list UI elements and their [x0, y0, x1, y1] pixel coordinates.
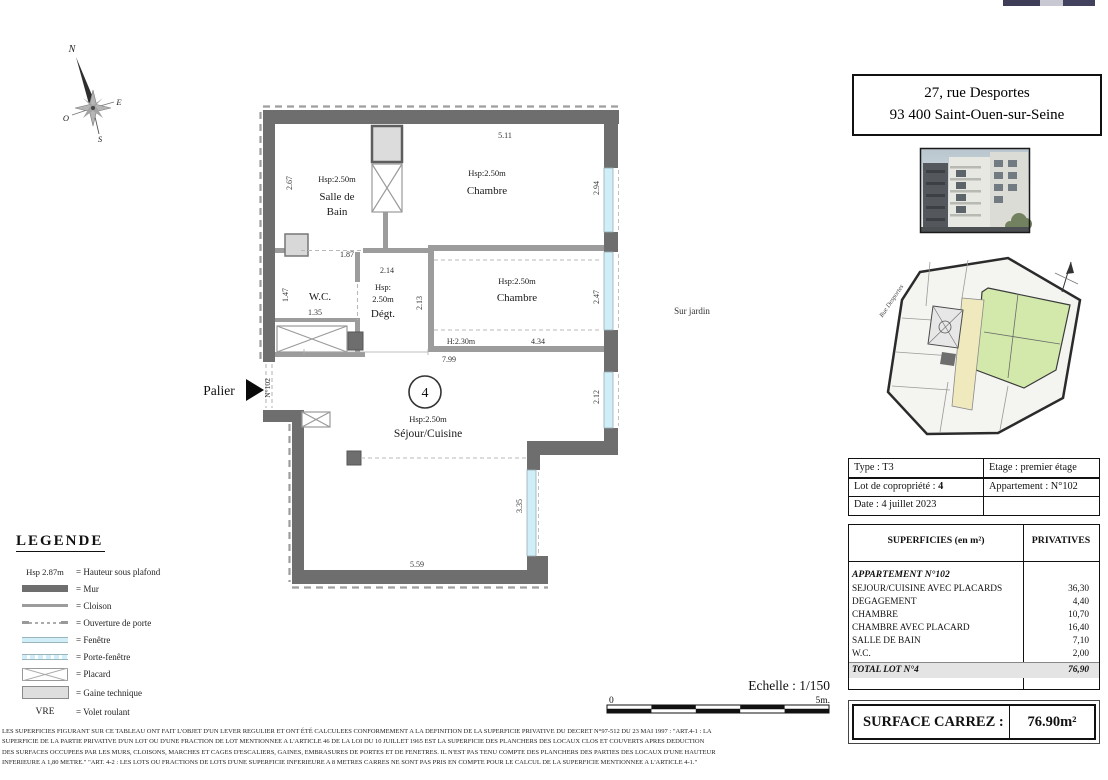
entrance-arrow-icon: [246, 379, 264, 401]
legend-row-ouverture: = Ouverture de porte: [14, 614, 244, 631]
compass-west-label: O: [63, 113, 69, 123]
hsp-key-text: Hsp 2.87m: [14, 567, 76, 577]
door-number-label: N°102: [263, 378, 272, 398]
table-row: SALLE DE BAIN 7,10: [849, 635, 1099, 648]
total-label: TOTAL LOT N°4: [852, 663, 919, 678]
legend-row-placard: = Placard: [14, 665, 244, 683]
disclaimer-line: INFERIEURE A 1,80 METRE." "ART. 4-2 : LE…: [2, 758, 846, 768]
dim-win-sejour-right: 2.12: [592, 390, 601, 404]
legend-row-vre: VRE = Volet roulant: [14, 702, 244, 722]
dim-degt-height: 2.13: [415, 296, 424, 310]
dim-sejour-bottom-width: 5.59: [410, 560, 424, 569]
table-row: CHAMBRE 10,70: [849, 609, 1099, 622]
legend-row-cloison: = Cloison: [14, 597, 244, 614]
cropped-photo-strip: [1003, 0, 1095, 6]
row-value: 2,00: [1073, 648, 1089, 661]
type-cell: Type : T3: [849, 459, 982, 477]
compass-north-label: N: [68, 44, 77, 55]
etage-cell: Etage : premier étage: [984, 459, 1101, 477]
row-value: 16,40: [1068, 622, 1089, 635]
degt-name: Dégt.: [371, 308, 395, 320]
legend-row-gaine: = Gaine technique: [14, 683, 244, 702]
row-label: SALLE DE BAIN: [852, 635, 921, 648]
surface-carrez-inner: SURFACE CARREZ : 76.90m²: [852, 704, 1096, 740]
key-plan: Rue Desportes: [878, 258, 1080, 434]
legal-disclaimer: LES SUPERFICIES FIGURANT SUR CE TABLEAU …: [2, 727, 846, 768]
garden-side-label: Sur jardin: [674, 306, 710, 316]
legend: LEGENDE Hsp 2.87m = Hauteur sous plafond…: [14, 532, 244, 722]
dim-sejour-top-width: 7.99: [442, 355, 456, 364]
sejour-name: Séjour/Cuisine: [394, 428, 462, 440]
scale-title: Echelle : 1/150: [748, 678, 830, 693]
dim-soffit-height: H:2.30m: [447, 337, 476, 346]
dim-win-sejour-door: 3.35: [515, 499, 524, 513]
sdb-name-line1: Salle de: [319, 191, 354, 203]
address-line2: 93 400 Saint-Ouen-sur-Seine: [890, 105, 1065, 127]
table-row: SEJOUR/CUISINE AVEC PLACARDS 36,30: [849, 583, 1099, 596]
scale-bar: Echelle : 1/150 0 5m.: [607, 678, 830, 713]
building-photo: [921, 149, 1033, 233]
total-row: TOTAL LOT N°4 76,90: [849, 662, 1099, 678]
legend-row-porte-fenetre: = Porte-fenêtre: [14, 648, 244, 665]
degt-hsp-line2: 2.50m: [372, 294, 394, 304]
chambre-mid-name: Chambre: [497, 292, 537, 304]
disclaimer-line: SUPERFICIE DE LA PARTIE PRIVATIVE D'UN L…: [2, 737, 846, 747]
closet-symbol: [22, 668, 68, 681]
legend-row-mur: = Mur: [14, 580, 244, 597]
row-value: 36,30: [1068, 583, 1089, 596]
dim-win-chambre-top: 2.94: [592, 181, 601, 195]
dim-wc-width: 1.35: [308, 308, 322, 317]
privatives-header: PRIVATIVES: [1023, 535, 1099, 546]
superficies-table: SUPERFICIES (en m²) PRIVATIVES APPARTEME…: [848, 524, 1100, 690]
windows: [527, 168, 613, 556]
table-rule: [849, 561, 1099, 562]
lot-info-table: Type : T3 Etage : premier étage Lot de c…: [848, 458, 1100, 516]
wall-symbol: [22, 585, 68, 592]
legend-row-hsp: Hsp 2.87m = Hauteur sous plafond: [14, 563, 244, 580]
row-label: CHAMBRE: [852, 609, 898, 622]
dim-chambre-mid-width: 4.34: [531, 337, 545, 346]
disclaimer-line: DES SURFACES OCCUPEES PAR LES MURS, CLOI…: [2, 748, 846, 758]
appartement-cell: Appartement : N°102: [984, 478, 1101, 496]
lot-value: 4: [938, 481, 943, 492]
wc-name: W.C.: [309, 291, 331, 303]
dim-sdb-width: 1.87: [340, 250, 354, 259]
row-label: DEGAGEMENT: [852, 596, 917, 609]
sdb-name-line2: Bain: [327, 206, 348, 218]
table-row: CHAMBRE AVEC PLACARD 16,40: [849, 622, 1099, 635]
row-value: 10,70: [1068, 609, 1089, 622]
french-window-symbol: [22, 654, 68, 660]
window-symbol: [22, 637, 68, 643]
door-opening-symbol: [22, 622, 68, 624]
legend-title: LEGENDE: [16, 533, 105, 552]
compass-rose-icon: N E O S: [63, 44, 122, 144]
partition-symbol: [22, 604, 68, 607]
chambre-mid-hsp-label: Hsp:2.50m: [498, 276, 536, 286]
sejour-hsp-label: Hsp:2.50m: [409, 414, 447, 424]
sdb-hsp-label: Hsp:2.50m: [318, 174, 356, 184]
chambre-top-hsp-label: Hsp:2.50m: [468, 168, 506, 178]
compass-south-label: S: [98, 134, 103, 144]
row-value: 4,40: [1073, 596, 1089, 609]
dim-sdb-height: 2.67: [285, 176, 294, 190]
dim-wc-height: 1.47: [281, 288, 290, 302]
address-line1: 27, rue Desportes: [924, 83, 1029, 105]
address-box: 27, rue Desportes 93 400 Saint-Ouen-sur-…: [852, 74, 1102, 136]
surface-carrez-value: 76.90m²: [1009, 706, 1094, 738]
lot-cell: Lot de copropriété : 4: [849, 478, 982, 496]
apartment-group-title: APPARTEMENT N°102: [852, 569, 950, 580]
dim-top-width: 5.11: [498, 131, 512, 140]
row-label: W.C.: [852, 648, 871, 661]
legend-row-fenetre: = Fenêtre: [14, 631, 244, 648]
duct-symbol: [22, 686, 69, 699]
surface-carrez-label: SURFACE CARREZ :: [854, 706, 1009, 738]
row-label: CHAMBRE AVEC PLACARD: [852, 622, 970, 635]
degt-hsp-line1: Hsp:: [375, 282, 391, 292]
surface-carrez-box: SURFACE CARREZ : 76.90m²: [848, 700, 1100, 744]
row-label: SEJOUR/CUISINE AVEC PLACARDS: [852, 583, 1002, 596]
disclaimer-line: LES SUPERFICIES FIGURANT SUR CE TABLEAU …: [2, 727, 846, 737]
total-value: 76,90: [1068, 663, 1089, 678]
date-cell: Date : 4 juillet 2023: [849, 496, 982, 514]
dim-degt-width: 2.14: [380, 266, 394, 275]
vre-key-text: VRE: [14, 707, 76, 717]
floor-plan-sheet: N E O S: [0, 0, 1108, 780]
table-row: W.C. 2,00: [849, 648, 1099, 661]
lot-number-text: 4: [422, 386, 429, 401]
lot-label: Lot de copropriété :: [854, 481, 938, 492]
row-value: 7,10: [1073, 635, 1089, 648]
dim-win-chambre-mid: 2.47: [592, 290, 601, 304]
table-row: DEGAGEMENT 4,40: [849, 596, 1099, 609]
chambre-top-name: Chambre: [467, 185, 507, 197]
compass-east-label: E: [115, 97, 122, 107]
superficies-header: SUPERFICIES (en m²): [849, 535, 1023, 546]
palier-label: Palier: [203, 383, 235, 398]
